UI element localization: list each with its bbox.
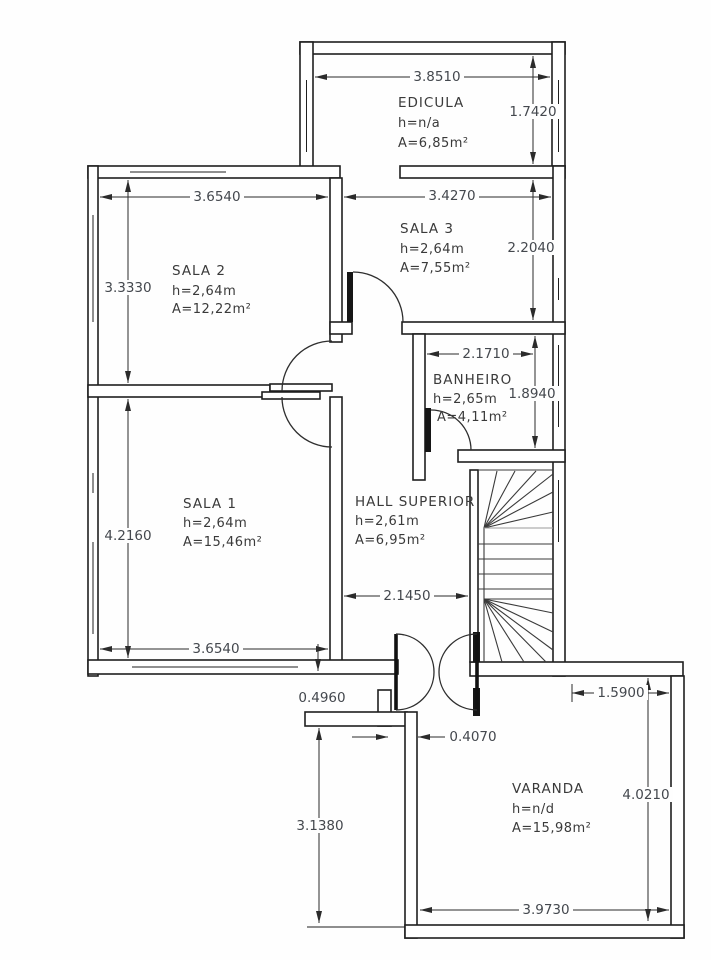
dim-edicula-width: 3.8510 <box>413 69 460 85</box>
dim-sala1-width: 3.6540 <box>192 641 239 657</box>
room-name-sala1: SALA 1 <box>183 496 237 512</box>
dim-sala3-depth: 2.2040 <box>507 240 554 256</box>
room-banheiro: BANHEIRO h=2,65m A=4,11m² <box>433 372 512 425</box>
room-name-sala2: SALA 2 <box>172 263 226 279</box>
dim-sala3-width: 3.4270 <box>428 188 475 204</box>
room-sala3: SALA 3 h=2,64m A=7,55m² <box>400 221 471 276</box>
room-area-sala1: A=15,46m² <box>183 535 262 550</box>
room-height-edicula: h=n/a <box>398 116 440 131</box>
room-name-varanda: VARANDA <box>512 781 584 797</box>
dim-sala2-width: 3.6540 <box>193 189 240 205</box>
room-height-hall: h=2,61m <box>355 514 419 529</box>
room-name-banheiro: BANHEIRO <box>433 372 512 388</box>
doors <box>262 272 477 710</box>
dim-edicula-depth: 1.7420 <box>509 104 556 120</box>
dim-door-offset: 0.4070 <box>449 729 496 745</box>
door-leaf-sala1 <box>262 392 320 399</box>
room-height-sala1: h=2,64m <box>183 516 247 531</box>
door-leaf-banheiro <box>425 408 431 452</box>
dim-terrace-depth: 3.1380 <box>296 818 343 834</box>
room-varanda: VARANDA h=n/d A=15,98m² <box>512 781 591 836</box>
dim-varanda-top: 1.5900 <box>597 685 644 701</box>
room-edicula: EDICULA h=n/a A=6,85m² <box>398 95 469 151</box>
double-door-left-arc <box>396 634 434 710</box>
room-name-sala3: SALA 3 <box>400 221 454 237</box>
dim-wall-offset: 0.4960 <box>298 690 345 706</box>
room-height-sala2: h=2,64m <box>172 284 236 299</box>
room-area-varanda: A=15,98m² <box>512 821 591 836</box>
room-name-edicula: EDICULA <box>398 95 464 111</box>
dim-hall-width: 2.1450 <box>383 588 430 604</box>
door-arc-sala3 <box>353 272 403 322</box>
room-area-sala3: A=7,55m² <box>400 261 471 276</box>
room-area-sala2: A=12,22m² <box>172 302 251 317</box>
staircase <box>478 470 553 662</box>
room-name-hall: HALL SUPERIOR <box>355 494 475 510</box>
dim-sala1-depth: 4.2160 <box>104 528 151 544</box>
room-area-banheiro: A=4,11m² <box>437 410 508 425</box>
room-sala1: SALA 1 h=2,64m A=15,46m² <box>183 496 262 550</box>
dim-varanda-width: 3.9730 <box>522 902 569 918</box>
room-hall: HALL SUPERIOR h=2,61m A=6,95m² <box>355 494 475 548</box>
door-leaf-sala3 <box>347 272 353 322</box>
room-height-sala3: h=2,64m <box>400 242 464 257</box>
door-leaf-sala2 <box>270 384 332 391</box>
dim-varanda-depth: 4.0210 <box>622 787 669 803</box>
dim-banheiro-depth: 1.8940 <box>508 386 555 402</box>
dim-banheiro-width: 2.1710 <box>462 346 509 362</box>
door-arc-sala1 <box>282 397 332 447</box>
floor-plan-svg: 3.8510 1.7420 3.6540 3.4270 3.3330 2.204… <box>0 0 711 960</box>
walls <box>88 42 684 938</box>
floor-plan: 3.8510 1.7420 3.6540 3.4270 3.3330 2.204… <box>0 0 711 960</box>
room-area-edicula: A=6,85m² <box>398 136 469 151</box>
dim-sala2-depth: 3.3330 <box>104 280 151 296</box>
room-area-hall: A=6,95m² <box>355 533 426 548</box>
room-height-banheiro: h=2,65m <box>433 392 497 407</box>
room-sala2: SALA 2 h=2,64m A=12,22m² <box>172 263 251 317</box>
room-height-varanda: h=n/d <box>512 802 555 817</box>
